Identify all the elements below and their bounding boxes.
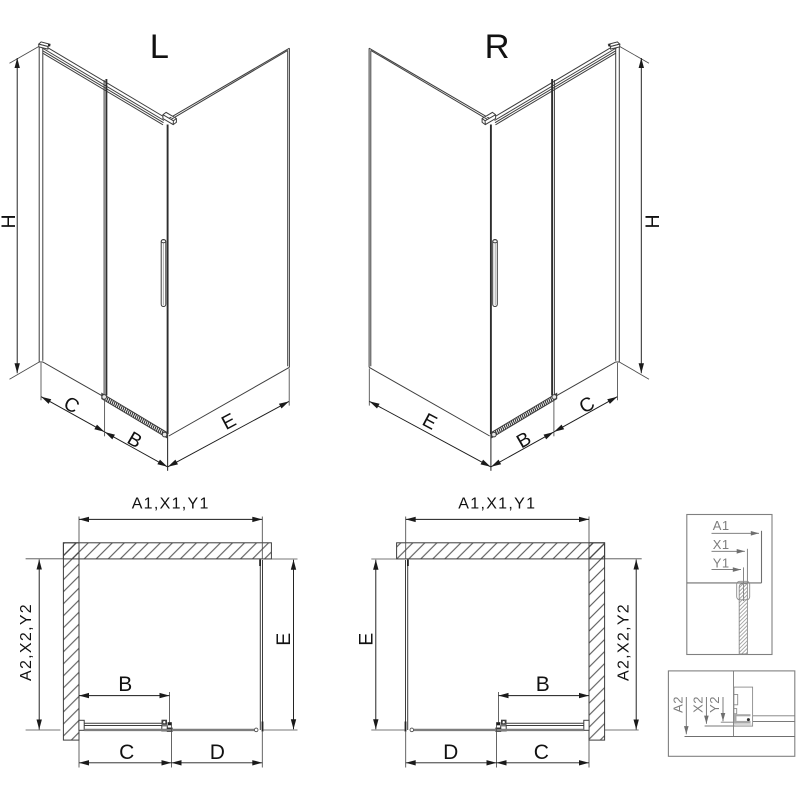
- svg-text:A1,X1,Y1: A1,X1,Y1: [132, 496, 210, 513]
- svg-text:Y2: Y2: [707, 696, 722, 713]
- svg-text:D: D: [443, 741, 458, 764]
- svg-text:Y1: Y1: [713, 555, 730, 570]
- svg-text:A2,X2,Y2: A2,X2,Y2: [615, 603, 632, 681]
- svg-text:B: B: [536, 673, 550, 696]
- svg-text:R: R: [485, 28, 510, 66]
- svg-text:B: B: [118, 673, 132, 696]
- svg-text:A2,X2,Y2: A2,X2,Y2: [18, 603, 35, 681]
- svg-text:C: C: [119, 741, 134, 764]
- svg-text:D: D: [210, 741, 225, 764]
- svg-text:X2: X2: [691, 696, 706, 713]
- svg-text:X1: X1: [713, 537, 730, 552]
- svg-text:A2: A2: [670, 696, 685, 713]
- svg-text:A1: A1: [713, 518, 730, 533]
- svg-text:A1,X1,Y1: A1,X1,Y1: [458, 496, 536, 513]
- svg-text:E: E: [273, 633, 295, 646]
- svg-text:C: C: [534, 741, 549, 764]
- svg-text:H: H: [0, 214, 20, 228]
- svg-text:E: E: [355, 633, 377, 646]
- svg-text:L: L: [150, 28, 169, 66]
- svg-text:H: H: [642, 214, 664, 228]
